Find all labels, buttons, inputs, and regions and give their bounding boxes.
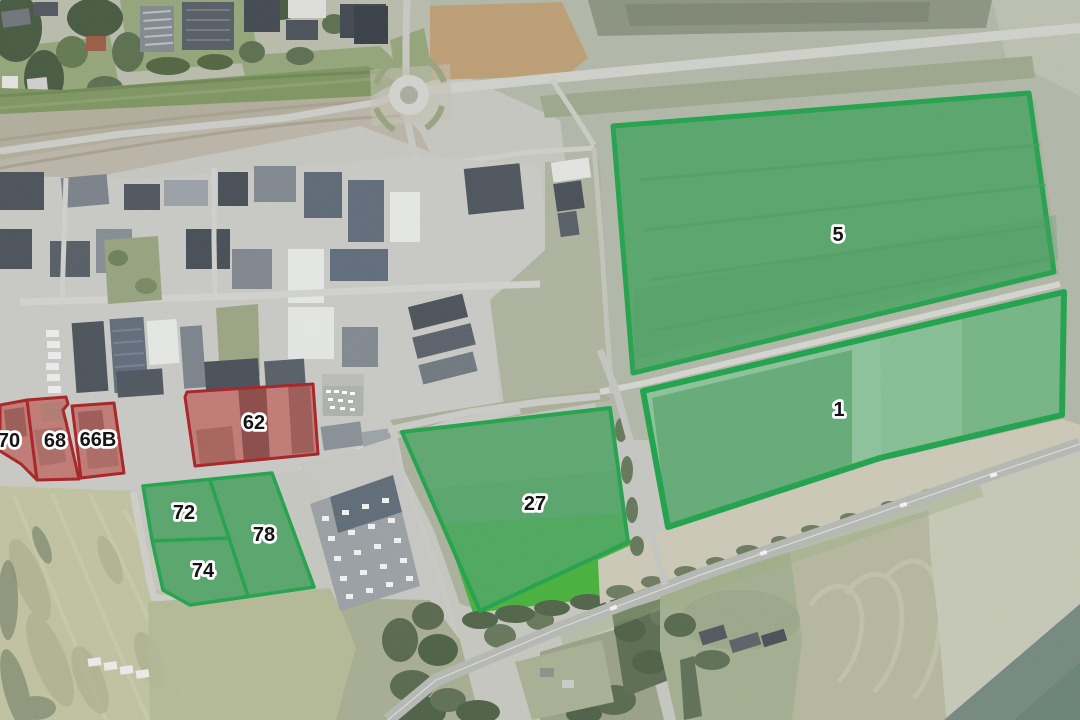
svg-text:74: 74 (192, 560, 215, 582)
svg-text:5: 5 (832, 224, 843, 246)
svg-text:62: 62 (243, 412, 265, 434)
svg-text:68: 68 (44, 430, 66, 452)
svg-text:66B: 66B (80, 429, 117, 451)
svg-text:78: 78 (253, 524, 275, 546)
svg-text:72: 72 (173, 502, 195, 524)
svg-text:70: 70 (0, 430, 20, 452)
svg-text:1: 1 (833, 399, 844, 421)
svg-text:27: 27 (524, 493, 546, 515)
